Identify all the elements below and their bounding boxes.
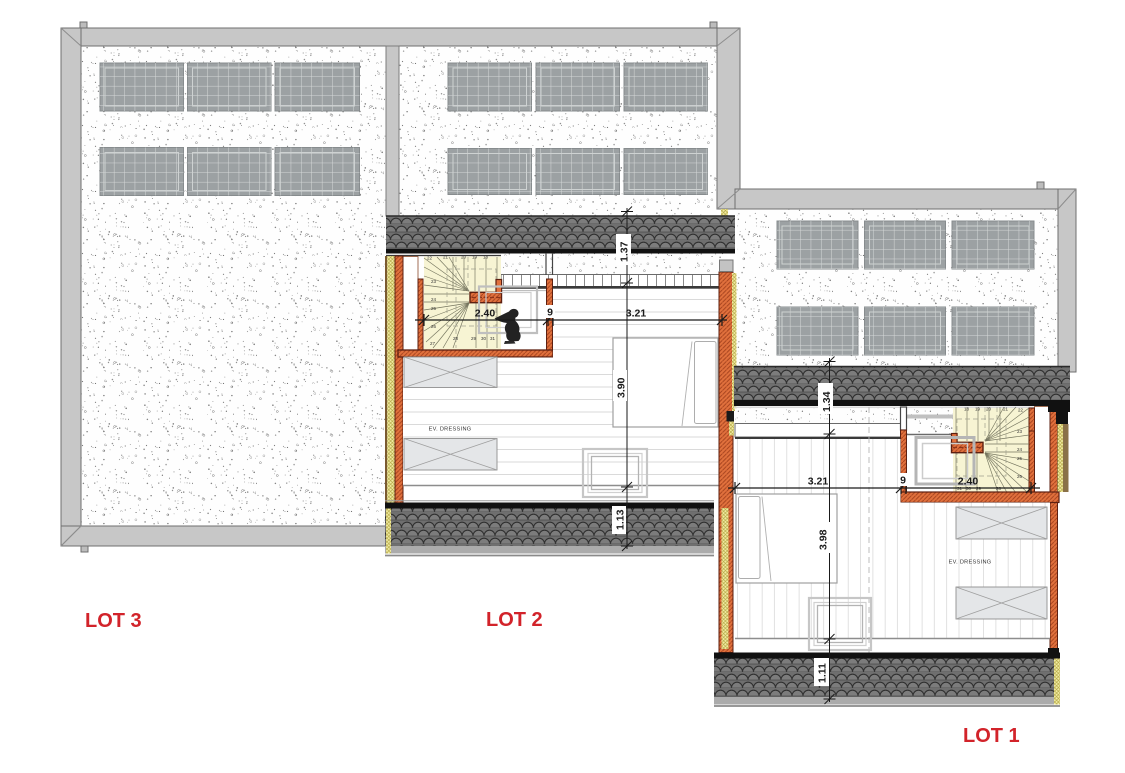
svg-text:25: 25: [431, 306, 437, 311]
svg-text:19: 19: [975, 407, 981, 412]
svg-text:25: 25: [1017, 456, 1023, 461]
svg-text:24: 24: [1017, 447, 1023, 452]
svg-text:LOT 3: LOT 3: [85, 610, 142, 632]
svg-text:LOT 2: LOT 2: [486, 609, 543, 631]
svg-text:EV. DRESSING: EV. DRESSING: [949, 560, 992, 566]
svg-text:1.34: 1.34: [821, 391, 833, 412]
svg-text:21: 21: [1003, 407, 1009, 412]
svg-text:20: 20: [986, 407, 992, 412]
svg-text:3.90: 3.90: [616, 377, 628, 398]
svg-text:9: 9: [900, 475, 906, 487]
svg-text:24: 24: [431, 297, 437, 302]
svg-text:3.98: 3.98: [818, 529, 830, 550]
svg-text:22: 22: [1018, 408, 1024, 413]
svg-text:EV. DRESSING: EV. DRESSING: [429, 427, 472, 433]
svg-text:29: 29: [471, 336, 477, 341]
svg-text:27: 27: [430, 341, 436, 346]
svg-text:1.13: 1.13: [615, 509, 627, 530]
svg-text:21: 21: [443, 255, 449, 260]
svg-text:31: 31: [490, 336, 496, 341]
svg-text:2.40: 2.40: [475, 308, 496, 320]
svg-text:1.11: 1.11: [817, 663, 829, 683]
svg-text:30: 30: [481, 336, 487, 341]
svg-text:18: 18: [964, 407, 970, 412]
svg-text:1.37: 1.37: [619, 241, 631, 262]
svg-text:3.21: 3.21: [808, 476, 829, 488]
svg-text:23: 23: [1017, 429, 1023, 434]
svg-text:3.21: 3.21: [626, 308, 647, 320]
svg-text:9: 9: [547, 307, 553, 319]
svg-text:26: 26: [431, 324, 437, 329]
svg-text:22: 22: [427, 256, 433, 261]
svg-text:19: 19: [472, 255, 478, 260]
svg-text:LOT 1: LOT 1: [963, 725, 1020, 747]
svg-text:28: 28: [453, 336, 459, 341]
svg-text:20: 20: [461, 255, 467, 260]
svg-text:23: 23: [431, 279, 437, 284]
svg-text:2.40: 2.40: [958, 476, 979, 488]
svg-text:18: 18: [483, 255, 489, 260]
svg-text:26: 26: [1017, 474, 1023, 479]
